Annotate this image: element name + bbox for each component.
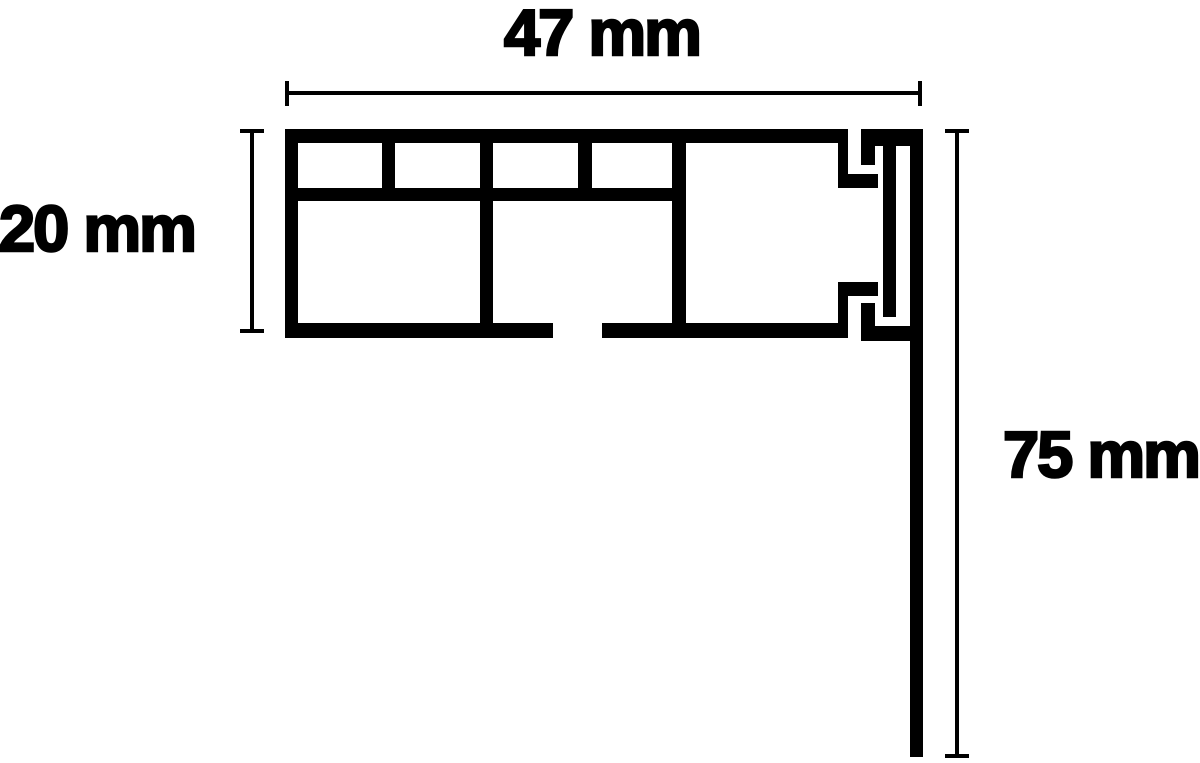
- profile-divider-right: [672, 143, 686, 323]
- drop-dimension-line: [945, 131, 969, 756]
- profile-bottom-wall-right: [602, 323, 848, 338]
- width-dimension-line: [287, 81, 920, 106]
- profile-bottom-wall-left: [285, 323, 553, 338]
- profile-bottom-hook-jaw: [838, 282, 878, 296]
- profile-bottom-end-stub: [861, 303, 875, 341]
- profile-top-end-stub: [861, 129, 875, 165]
- profile-divider-stub-1: [382, 143, 395, 188]
- profile-top-wall: [285, 129, 848, 143]
- curtain-rail-profile-diagram: 47 mm 20 mm 75 mm: [0, 0, 1200, 763]
- height-dimension-line: [240, 131, 264, 331]
- drop-dimension-label: 75 mm: [1003, 418, 1199, 491]
- profile-cross-section: [285, 129, 923, 757]
- profile-fascia-wall: [910, 129, 923, 757]
- profile-inner-rail: [883, 146, 896, 317]
- profile-divider-middle: [480, 143, 493, 323]
- diagram-canvas: 47 mm 20 mm 75 mm: [0, 0, 1200, 763]
- profile-divider-stub-2: [578, 143, 592, 188]
- profile-left-wall: [285, 129, 298, 338]
- height-dimension-label: 20 mm: [0, 192, 195, 265]
- profile-top-hook-jaw: [838, 174, 878, 188]
- width-dimension-label: 47 mm: [504, 0, 700, 69]
